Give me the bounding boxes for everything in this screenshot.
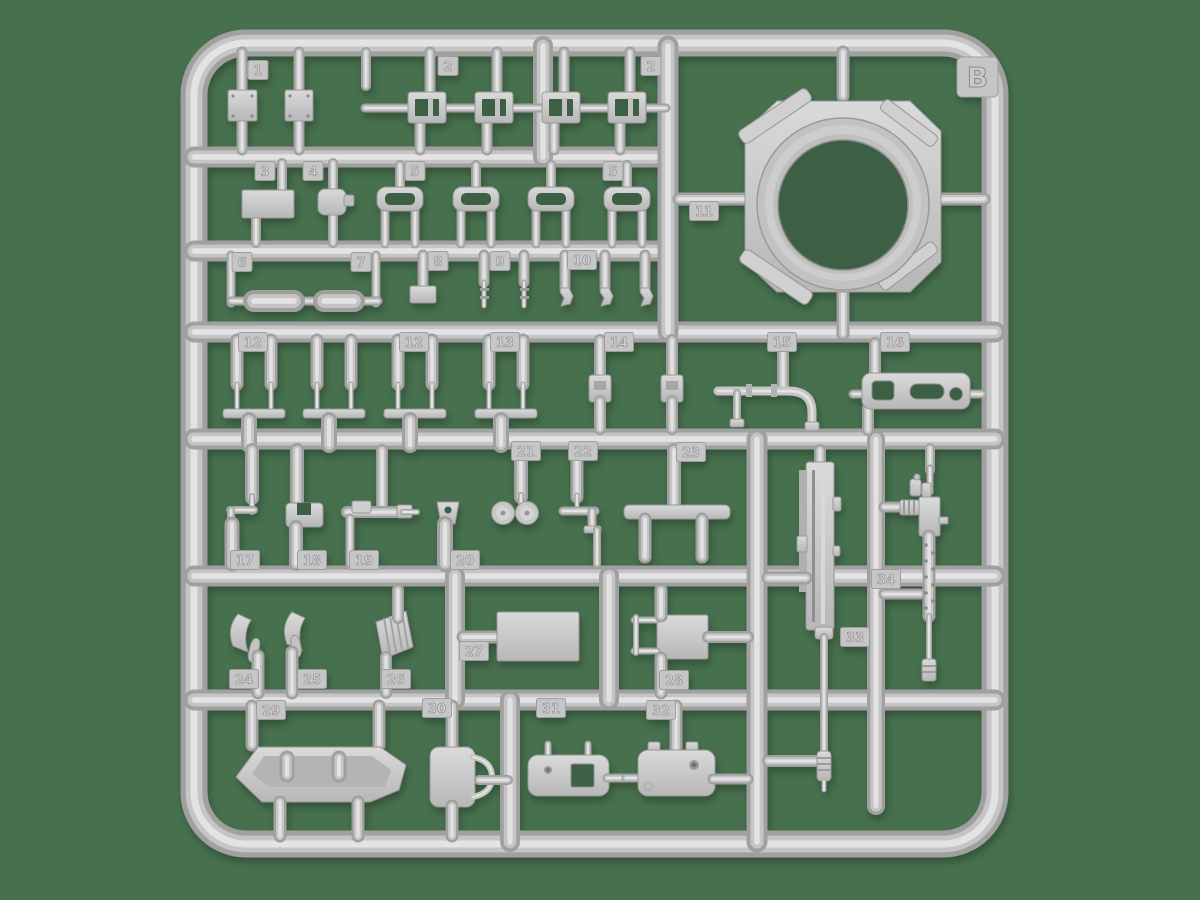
- part-label-number: 2: [443, 60, 452, 75]
- part-31: [528, 755, 609, 796]
- part-label-number: 23: [682, 446, 700, 461]
- part-34-grip: [910, 479, 921, 496]
- part-label-19: 19: [350, 551, 379, 570]
- part-label-18: 18: [298, 551, 327, 570]
- part-shape: [872, 381, 894, 400]
- part-34-muzzle: [922, 659, 936, 681]
- part-33-mg-receiver: [806, 462, 834, 630]
- part-shape: [480, 296, 489, 299]
- part-label-20: 20: [451, 551, 480, 570]
- part-label-number: 21: [517, 445, 535, 460]
- part-label-27: 27: [460, 642, 489, 661]
- part-shape: [910, 384, 944, 399]
- part-shape: [520, 296, 529, 299]
- detail-dot: [288, 94, 291, 97]
- part-label-number: 18: [303, 554, 321, 569]
- part-label-26: 26: [382, 670, 411, 689]
- part-label-number: 24: [235, 673, 253, 688]
- part-shape: [797, 536, 807, 552]
- part-shape: [746, 384, 752, 397]
- part-label-32: 32: [647, 701, 676, 720]
- part-shape: [520, 288, 529, 291]
- part-shape: [821, 466, 825, 624]
- part-label-12: 12: [239, 333, 268, 352]
- part-shape: [908, 500, 910, 515]
- part-label-number: 6: [237, 256, 246, 271]
- part-label-28: 28: [660, 671, 689, 690]
- detail-dot: [231, 114, 234, 117]
- part-label-10: 10: [568, 251, 597, 270]
- part-label-21: 21: [512, 442, 541, 461]
- part-shape: [546, 768, 550, 772]
- part-label-14: 14: [605, 333, 634, 352]
- part-label-number: 12: [244, 336, 262, 351]
- part-shape: [922, 483, 931, 498]
- detail-dot: [306, 94, 309, 97]
- part-label-number: 19: [355, 554, 373, 569]
- part-shape: [805, 422, 819, 431]
- part-shape: [913, 500, 915, 515]
- part-label-number: 5: [608, 165, 617, 180]
- part-label-number: 28: [665, 674, 683, 689]
- part-label-6: 6: [232, 253, 252, 272]
- part-label-7: 7: [351, 253, 371, 272]
- part-shape: [480, 288, 489, 291]
- part-shape: [914, 474, 920, 480]
- part-label-number: 8: [433, 255, 442, 270]
- part-label-number: 4: [308, 165, 317, 180]
- part-shape: [615, 99, 639, 116]
- part-label-number: 27: [465, 645, 483, 660]
- part-shape: [812, 470, 815, 622]
- part-shape: [666, 381, 678, 390]
- part-label-24: 24: [230, 670, 259, 689]
- part-label-17: 17: [231, 551, 260, 570]
- part-shape: [922, 665, 936, 667]
- part-shape: [571, 764, 594, 787]
- detail-dot: [924, 543, 928, 547]
- part-label-30: 30: [423, 699, 452, 718]
- part-shape: [817, 757, 831, 759]
- part-label-number: 29: [262, 704, 280, 719]
- detail-dot: [924, 591, 928, 595]
- part-shape: [612, 193, 642, 205]
- part-label-number: 11: [695, 205, 713, 220]
- part-label-9: 9: [490, 252, 510, 271]
- part-label-2: 2: [438, 57, 458, 76]
- part-label-33: 33: [841, 628, 870, 647]
- part-label-34: 34: [872, 570, 901, 589]
- part-label-number: 34: [877, 573, 895, 588]
- part-shape: [562, 98, 567, 117]
- part-shape: [594, 381, 606, 390]
- detail-dot: [931, 599, 935, 603]
- part-shape: [415, 99, 439, 116]
- part-label-number: 30: [428, 702, 446, 717]
- part-label-5: 5: [603, 162, 623, 181]
- detail-dot: [931, 583, 935, 587]
- detail-dot: [931, 567, 935, 571]
- part-shape: [297, 503, 311, 515]
- part-shape: [817, 769, 831, 771]
- part-label-number: 5: [410, 165, 419, 180]
- part-label-number: 31: [542, 702, 560, 717]
- detail-dot: [306, 114, 309, 117]
- part-shape: [385, 193, 415, 205]
- detail-dot: [288, 114, 291, 117]
- part-shape: [950, 388, 963, 401]
- part-label-number: 16: [886, 336, 904, 351]
- part-shape: [495, 98, 500, 117]
- part-label-31: 31: [537, 699, 566, 718]
- part-label-12: 12: [400, 333, 429, 352]
- part-label-3: 3: [255, 162, 275, 181]
- part-label-number: 1: [253, 64, 262, 79]
- part-label-number: 22: [574, 445, 592, 460]
- detail-dot: [250, 94, 253, 97]
- part-shape: [352, 501, 371, 513]
- part-shape: [771, 384, 777, 397]
- part-shape: [549, 99, 573, 116]
- part-shape: [903, 500, 905, 515]
- part-label-13: 13: [491, 333, 520, 352]
- part-shape: [536, 193, 566, 205]
- part-33-muzzle: [817, 751, 831, 781]
- part-label-number: 2: [646, 60, 655, 75]
- part-shape: [922, 671, 936, 673]
- part-3: [242, 190, 294, 218]
- part-label-number: 15: [773, 336, 791, 351]
- sprue-letter: B: [967, 61, 988, 94]
- part-shape: [501, 511, 506, 516]
- part-shape: [252, 756, 391, 787]
- part-shape: [628, 98, 633, 117]
- part-label-number: 20: [456, 554, 474, 569]
- detail-dot: [231, 94, 234, 97]
- part-label-16: 16: [881, 333, 910, 352]
- sprue-photo: 1223455678910111212131415162122231718192…: [0, 0, 1200, 900]
- part-shape: [817, 763, 831, 765]
- sprue-render: 1223455678910111212131415162122231718192…: [0, 0, 1200, 900]
- part-27-box: [497, 612, 579, 661]
- part-label-8: 8: [428, 252, 448, 271]
- sprue-letter-tag: B: [957, 57, 998, 97]
- part-28-box: [657, 615, 708, 659]
- part-label-2: 2: [641, 57, 661, 76]
- part-shape: [461, 193, 491, 205]
- part-label-number: 3: [260, 165, 269, 180]
- part-label-number: 25: [303, 673, 321, 688]
- part-label-number: 32: [652, 704, 670, 719]
- part-label-number: 7: [356, 256, 365, 271]
- part-shape: [833, 546, 840, 556]
- part-shape: [445, 507, 452, 514]
- part-30: [430, 747, 475, 807]
- detail-dot: [924, 559, 928, 563]
- part-label-number: 13: [496, 336, 514, 351]
- part-label-number: 26: [387, 673, 405, 688]
- part-label-29: 29: [257, 701, 286, 720]
- part-label-25: 25: [298, 670, 327, 689]
- part-32: [638, 750, 715, 796]
- part-shape: [833, 497, 841, 511]
- part-label-23: 23: [677, 443, 706, 462]
- detail-dot: [924, 606, 928, 610]
- part-shape: [525, 511, 530, 516]
- part-shape: [939, 517, 948, 524]
- detail-dot: [924, 575, 928, 579]
- part-shape: [344, 195, 354, 206]
- part-label-number: 14: [610, 336, 628, 351]
- part-label-4: 4: [303, 162, 323, 181]
- part-shape: [730, 419, 744, 427]
- part-label-22: 22: [569, 442, 598, 461]
- part-label-number: 33: [846, 631, 864, 646]
- part-label-11: 11: [690, 202, 719, 221]
- part-label-5: 5: [405, 162, 425, 181]
- part-label-1: 1: [248, 61, 268, 80]
- detail-dot: [250, 114, 253, 117]
- part-label-number: 9: [495, 255, 504, 270]
- part-4: [318, 189, 346, 215]
- part-label-15: 15: [768, 333, 797, 352]
- part-shape: [428, 98, 433, 117]
- part-label-number: 10: [573, 254, 591, 269]
- part-8: [410, 286, 436, 303]
- detail-dot: [931, 551, 935, 555]
- turret-ring-hole: [778, 140, 908, 270]
- part-shape: [692, 763, 697, 768]
- part-label-number: 12: [405, 336, 423, 351]
- part-label-number: 17: [236, 554, 254, 569]
- part-shape: [482, 99, 506, 116]
